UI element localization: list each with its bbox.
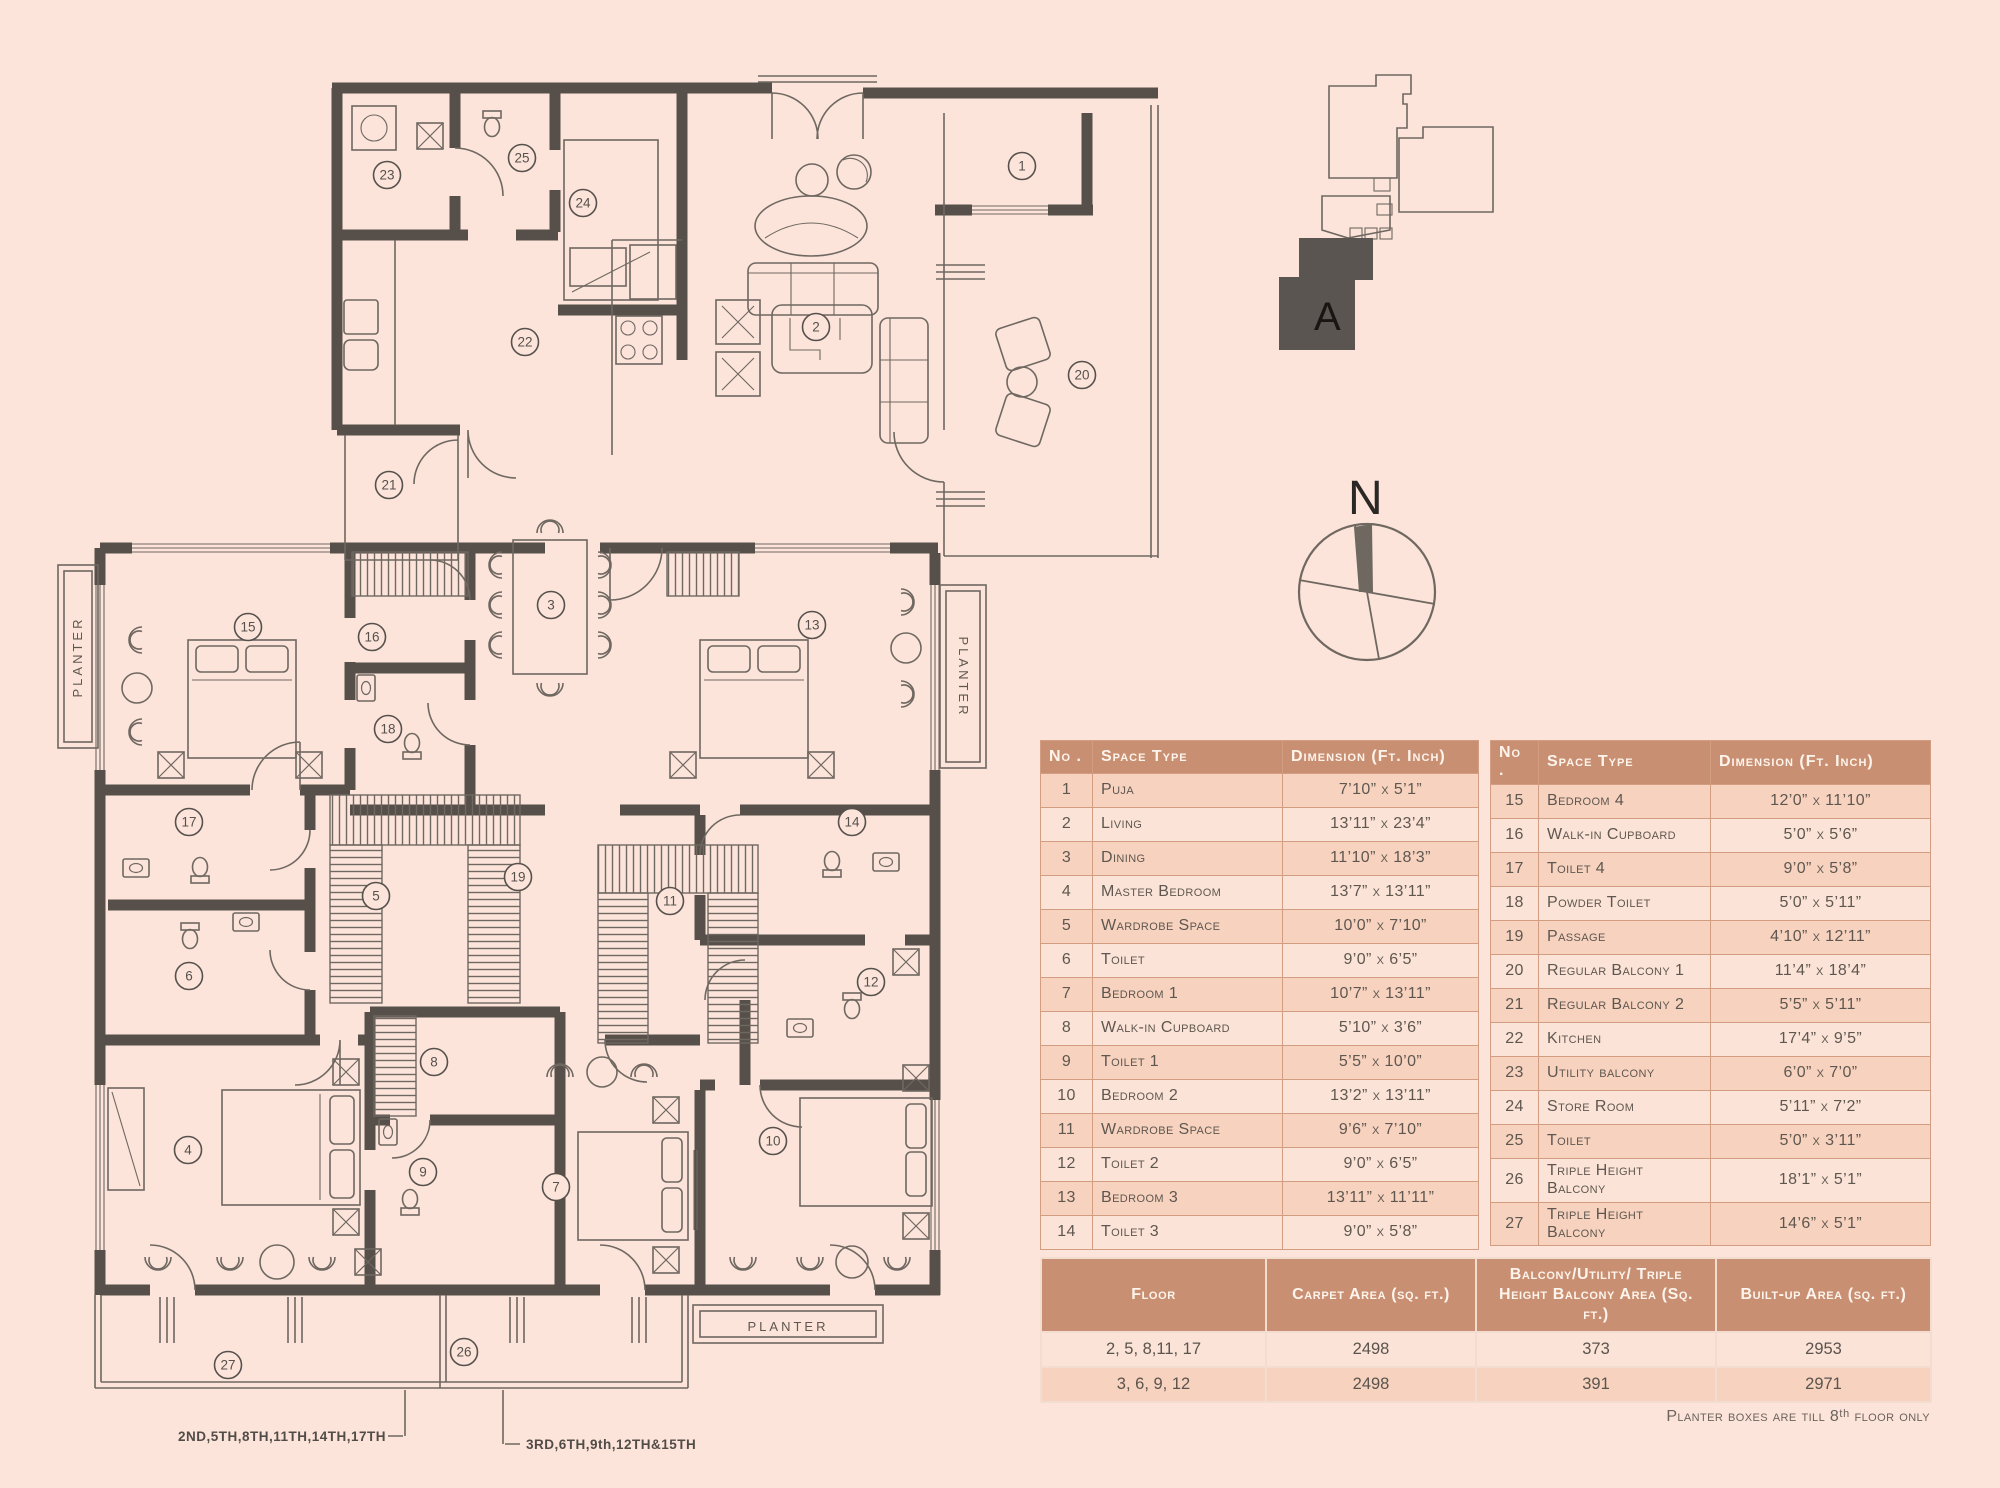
space-cell-no: 23 (1491, 1056, 1539, 1090)
space-cell-dim: 14’6” x 5’1” (1711, 1202, 1931, 1246)
space-cell-dim: 13’2” x 13’11” (1283, 1080, 1479, 1114)
room-marker-label: 5 (372, 889, 380, 904)
space-row: 1Puja7’10” x 5’1” (1041, 774, 1479, 808)
space-cell-dim: 9’0” x 5’8” (1711, 852, 1931, 886)
space-row: 5Wardrobe Space10’0” x 7’10” (1041, 910, 1479, 944)
space-cell-dim: 17’4” x 9’5” (1711, 1022, 1931, 1056)
area-row: 2, 5, 8,11, 1724983732953 (1041, 1332, 1931, 1367)
space-cell-no: 10 (1041, 1080, 1093, 1114)
space-row: 10Bedroom 213’2” x 13’11” (1041, 1080, 1479, 1114)
room-marker-label: 22 (517, 335, 532, 350)
col-header-space: Space Type (1093, 741, 1283, 774)
balconies-planters (58, 76, 1158, 1444)
room-marker-label: 13 (804, 618, 819, 633)
space-cell-space: Triple Height Balcony (1539, 1158, 1711, 1202)
area-col-header: Balcony/Utility/ Triple Height Balcony A… (1476, 1258, 1716, 1332)
room-marker-label: 25 (514, 151, 529, 166)
room-marker-label: 4 (184, 1143, 192, 1158)
space-row: 24Store Room5’11” x 7’2” (1491, 1090, 1931, 1124)
space-cell-no: 24 (1491, 1090, 1539, 1124)
space-cell-space: Toilet 4 (1539, 852, 1711, 886)
room-marker-label: 16 (364, 630, 379, 645)
room-marker-label: 26 (456, 1345, 471, 1360)
room-marker-label: 3 (547, 598, 555, 613)
space-row: 23Utility balcony6’0” x 7’0” (1491, 1056, 1931, 1090)
room-marker-label: 24 (575, 196, 591, 211)
space-cell-space: Store Room (1539, 1090, 1711, 1124)
col-header-dimension: Dimension (Ft. Inch) (1711, 741, 1931, 785)
area-cell: 391 (1476, 1367, 1716, 1402)
space-cell-no: 6 (1041, 944, 1093, 978)
space-cell-space: Regular Balcony 2 (1539, 988, 1711, 1022)
col-header-no: No . (1041, 741, 1093, 774)
space-cell-dim: 10’7” x 13’11” (1283, 978, 1479, 1012)
space-cell-space: Dining (1093, 842, 1283, 876)
floor-area-table: FloorCarpet Area (sq. ft.)Balcony/Utilit… (1040, 1257, 1932, 1403)
room-marker-label: 9 (419, 1165, 427, 1180)
room-marker-label: 8 (430, 1055, 438, 1070)
space-cell-no: 8 (1041, 1012, 1093, 1046)
area-col-header: Carpet Area (sq. ft.) (1266, 1258, 1476, 1332)
room-marker-label: 20 (1074, 368, 1089, 383)
space-cell-space: Bedroom 2 (1093, 1080, 1283, 1114)
space-cell-no: 13 (1041, 1182, 1093, 1216)
area-col-header: Built-up Area (sq. ft.) (1716, 1258, 1931, 1332)
north-compass-icon: N (1299, 472, 1435, 660)
space-cell-space: Triple Height Balcony (1539, 1202, 1711, 1246)
room-marker-label: 27 (220, 1358, 235, 1373)
walls (100, 88, 1158, 1295)
space-cell-space: Walk-in Cupboard (1539, 818, 1711, 852)
space-cell-no: 5 (1041, 910, 1093, 944)
space-cell-space: Powder Toilet (1539, 886, 1711, 920)
space-cell-dim: 9’0” x 6’5” (1283, 1148, 1479, 1182)
space-cell-no: 4 (1041, 876, 1093, 910)
space-cell-dim: 13’11” x 23’4” (1283, 808, 1479, 842)
area-row: 3, 6, 9, 1224983912971 (1041, 1367, 1931, 1402)
space-cell-dim: 5’0” x 3’11” (1711, 1124, 1931, 1158)
space-cell-dim: 9’0” x 6’5” (1283, 944, 1479, 978)
room-marker-label: 18 (380, 722, 395, 737)
room-marker-label: 21 (381, 478, 396, 493)
space-cell-dim: 13’7” x 13’11” (1283, 876, 1479, 910)
space-dimension-table-right: No . Space Type Dimension (Ft. Inch) 15B… (1490, 740, 1931, 1246)
space-cell-space: Toilet 3 (1093, 1216, 1283, 1250)
space-cell-no: 16 (1491, 818, 1539, 852)
room-marker-label: 12 (863, 975, 878, 990)
planter-note: Planter boxes are till 8ᵗʰ floor only (1040, 1408, 1930, 1426)
floorplan-page: A N PLANTER PLANTER PLANTER 2ND,5TH,8TH,… (0, 0, 2000, 1488)
space-row: 22Kitchen17’4” x 9’5” (1491, 1022, 1931, 1056)
windows (96, 206, 1048, 1250)
key-plan: A (1279, 75, 1493, 350)
space-row: 12Toilet 29’0” x 6’5” (1041, 1148, 1479, 1182)
space-cell-space: Utility balcony (1539, 1056, 1711, 1090)
space-cell-space: Regular Balcony 1 (1539, 954, 1711, 988)
space-cell-space: Wardrobe Space (1093, 1114, 1283, 1148)
space-row: 7Bedroom 110’7” x 13’11” (1041, 978, 1479, 1012)
space-cell-no: 3 (1041, 842, 1093, 876)
area-cell: 3, 6, 9, 12 (1041, 1367, 1266, 1402)
area-cell: 2, 5, 8,11, 17 (1041, 1332, 1266, 1367)
space-cell-no: 9 (1041, 1046, 1093, 1080)
space-cell-dim: 4’10” x 12’11” (1711, 920, 1931, 954)
space-cell-dim: 6’0” x 7’0” (1711, 1056, 1931, 1090)
space-row: 3Dining11’10” x 18’3” (1041, 842, 1479, 876)
unit-label: A (1314, 295, 1341, 339)
space-cell-no: 19 (1491, 920, 1539, 954)
col-header-no: No . (1491, 741, 1539, 785)
room-marker-label: 7 (552, 1180, 560, 1195)
space-cell-space: Toilet (1093, 944, 1283, 978)
space-cell-dim: 5’5” x 10’0” (1283, 1046, 1479, 1080)
space-cell-space: Bedroom 4 (1539, 784, 1711, 818)
space-cell-no: 1 (1041, 774, 1093, 808)
room-marker-label: 17 (181, 815, 196, 830)
space-cell-no: 20 (1491, 954, 1539, 988)
north-label: N (1348, 472, 1383, 525)
area-cell: 2498 (1266, 1332, 1476, 1367)
col-header-dimension: Dimension (Ft. Inch) (1283, 741, 1479, 774)
room-marker-label: 10 (765, 1134, 780, 1149)
space-cell-dim: 11’10” x 18’3” (1283, 842, 1479, 876)
planter-label-right: PLANTER (956, 637, 971, 718)
space-cell-no: 12 (1041, 1148, 1093, 1182)
space-cell-space: Living (1093, 808, 1283, 842)
space-row: 11Wardrobe Space9’6” x 7’10” (1041, 1114, 1479, 1148)
space-cell-dim: 9’6” x 7’10” (1283, 1114, 1479, 1148)
room-marker-label: 19 (510, 870, 525, 885)
space-cell-no: 22 (1491, 1022, 1539, 1056)
room-marker-label: 23 (379, 168, 394, 183)
room-marker-label: 2 (812, 320, 820, 335)
room-marker-label: 6 (185, 969, 193, 984)
space-cell-space: Toilet 2 (1093, 1148, 1283, 1182)
space-cell-dim: 13’11” x 11’11” (1283, 1182, 1479, 1216)
space-row: 2Living13’11” x 23’4” (1041, 808, 1479, 842)
area-cell: 2498 (1266, 1367, 1476, 1402)
planter-label-left: PLANTER (70, 617, 85, 698)
space-cell-space: Bedroom 3 (1093, 1182, 1283, 1216)
space-cell-dim: 5’0” x 5’11” (1711, 886, 1931, 920)
space-cell-no: 11 (1041, 1114, 1093, 1148)
area-col-header: Floor (1041, 1258, 1266, 1332)
room-marker-label: 15 (240, 620, 255, 635)
space-cell-dim: 5’0” x 5’6” (1711, 818, 1931, 852)
space-cell-no: 26 (1491, 1158, 1539, 1202)
space-cell-no: 17 (1491, 852, 1539, 886)
space-cell-no: 14 (1041, 1216, 1093, 1250)
space-cell-space: Walk-in Cupboard (1093, 1012, 1283, 1046)
space-cell-no: 25 (1491, 1124, 1539, 1158)
space-cell-space: Kitchen (1539, 1022, 1711, 1056)
space-cell-space: Wardrobe Space (1093, 910, 1283, 944)
space-cell-space: Toilet 1 (1093, 1046, 1283, 1080)
space-row: 13Bedroom 313’11” x 11’11” (1041, 1182, 1479, 1216)
space-cell-space: Master Bedroom (1093, 876, 1283, 910)
space-cell-no: 27 (1491, 1202, 1539, 1246)
space-row: 14Toilet 39’0” x 5’8” (1041, 1216, 1479, 1250)
area-cell: 2953 (1716, 1332, 1931, 1367)
furniture (108, 106, 1052, 1279)
floor-callout-right: 3RD,6TH,9th,12TH&15TH (526, 1437, 696, 1452)
space-row: 20Regular Balcony 111’4” x 18’4” (1491, 954, 1931, 988)
space-cell-space: Toilet (1539, 1124, 1711, 1158)
col-header-space: Space Type (1539, 741, 1711, 785)
space-cell-no: 18 (1491, 886, 1539, 920)
area-cell: 373 (1476, 1332, 1716, 1367)
space-cell-dim: 5’5” x 5’11” (1711, 988, 1931, 1022)
planter-label-bottom: PLANTER (748, 1319, 829, 1334)
room-marker-label: 11 (663, 894, 677, 909)
space-cell-dim: 5’10” x 3’6” (1283, 1012, 1479, 1046)
space-cell-dim: 5’11” x 7’2” (1711, 1090, 1931, 1124)
space-cell-space: Bedroom 1 (1093, 978, 1283, 1012)
space-row: 17Toilet 49’0” x 5’8” (1491, 852, 1931, 886)
space-row: 27Triple Height Balcony14’6” x 5’1” (1491, 1202, 1931, 1246)
space-cell-space: Passage (1539, 920, 1711, 954)
space-row: 6Toilet9’0” x 6’5” (1041, 944, 1479, 978)
space-cell-dim: 10’0” x 7’10” (1283, 910, 1479, 944)
room-marker-label: 14 (844, 815, 860, 830)
space-row: 18Powder Toilet5’0” x 5’11” (1491, 886, 1931, 920)
space-cell-space: Puja (1093, 774, 1283, 808)
area-cell: 2971 (1716, 1367, 1931, 1402)
space-cell-no: 7 (1041, 978, 1093, 1012)
space-row: 19Passage4’10” x 12’11” (1491, 920, 1931, 954)
space-cell-dim: 12’0” x 11’10” (1711, 784, 1931, 818)
space-row: 25Toilet5’0” x 3’11” (1491, 1124, 1931, 1158)
space-row: 21Regular Balcony 25’5” x 5’11” (1491, 988, 1931, 1022)
space-row: 9Toilet 15’5” x 10’0” (1041, 1046, 1479, 1080)
space-row: 16Walk-in Cupboard5’0” x 5’6” (1491, 818, 1931, 852)
room-marker-label: 1 (1018, 159, 1026, 174)
space-row: 26Triple Height Balcony18’1” x 5’1” (1491, 1158, 1931, 1202)
space-cell-dim: 7’10” x 5’1” (1283, 774, 1479, 808)
floor-callout-left: 2ND,5TH,8TH,11TH,14TH,17TH (178, 1429, 386, 1444)
space-row: 15Bedroom 412’0” x 11’10” (1491, 784, 1931, 818)
space-cell-dim: 18’1” x 5’1” (1711, 1158, 1931, 1202)
space-row: 8Walk-in Cupboard5’10” x 3’6” (1041, 1012, 1479, 1046)
space-row: 4Master Bedroom13’7” x 13’11” (1041, 876, 1479, 910)
space-cell-no: 2 (1041, 808, 1093, 842)
space-cell-dim: 11’4” x 18’4” (1711, 954, 1931, 988)
space-cell-no: 21 (1491, 988, 1539, 1022)
space-dimension-table-left: No . Space Type Dimension (Ft. Inch) 1Pu… (1040, 740, 1479, 1250)
space-cell-no: 15 (1491, 784, 1539, 818)
space-cell-dim: 9’0” x 5’8” (1283, 1216, 1479, 1250)
